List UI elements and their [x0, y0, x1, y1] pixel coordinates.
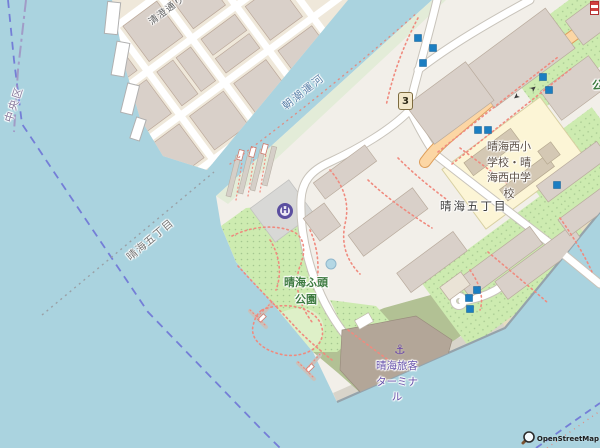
poi-marker — [474, 287, 481, 294]
poi-marker — [420, 60, 427, 67]
attribution-text: OpenStreetMap — [537, 435, 599, 443]
anchor-icon: ⚓ — [394, 343, 406, 358]
map-canvas[interactable]: 清澄通り 朝潮運河 中央区 晴海五丁目 晴海五丁目 晴海西小 学校・晴 海西中学… — [0, 0, 600, 448]
pond — [326, 259, 336, 269]
poi-marker — [467, 306, 474, 313]
poi-marker — [485, 127, 492, 134]
poi-marker — [554, 182, 561, 189]
poi-marker — [475, 127, 482, 134]
poi-marker — [430, 45, 437, 52]
poi-marker — [546, 87, 553, 94]
poi-marker — [415, 35, 422, 42]
poi-marker — [540, 74, 547, 81]
poi-marker — [466, 295, 473, 302]
osm-attribution[interactable]: OpenStreetMap — [519, 430, 599, 447]
map-tiles — [0, 0, 600, 448]
magnifier-icon — [519, 430, 536, 447]
route-3-shield: 3 — [398, 92, 413, 110]
tower-icon — [590, 1, 599, 15]
helipad-icon: H — [277, 203, 293, 219]
